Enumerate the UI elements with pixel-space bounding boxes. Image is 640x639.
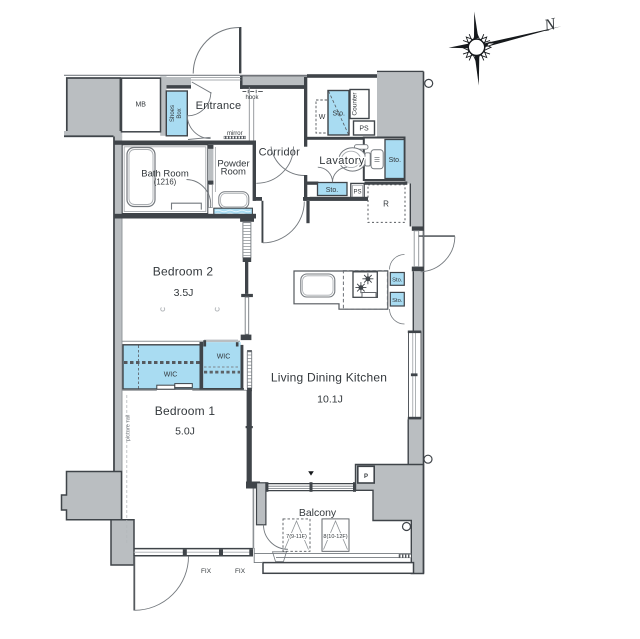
- svg-text:Counter: Counter: [352, 92, 359, 116]
- svg-text:3.5J: 3.5J: [174, 287, 194, 299]
- svg-text:FIX: FIX: [201, 568, 212, 575]
- svg-text:Balcony: Balcony: [299, 507, 337, 519]
- svg-text:Entrance: Entrance: [196, 100, 242, 112]
- svg-text:(1216): (1216): [154, 177, 177, 186]
- svg-text:Sto.: Sto.: [389, 157, 402, 164]
- svg-text:Lavatory: Lavatory: [319, 155, 364, 167]
- svg-text:PS: PS: [353, 190, 361, 196]
- svg-text:Shoes: Shoes: [170, 105, 176, 122]
- svg-text:Sto.: Sto.: [392, 298, 403, 304]
- svg-text:hook: hook: [245, 95, 259, 101]
- svg-text:MB: MB: [135, 102, 146, 109]
- svg-text:W: W: [319, 114, 326, 121]
- svg-text:Sto.: Sto.: [326, 187, 339, 194]
- svg-text:WIC: WIC: [217, 354, 231, 361]
- svg-text:Sto.: Sto.: [332, 111, 345, 118]
- svg-text:7(9-11F): 7(9-11F): [286, 534, 307, 540]
- svg-text:8(10-12F): 8(10-12F): [323, 534, 347, 540]
- svg-text:PS: PS: [359, 126, 369, 133]
- svg-text:Sto.: Sto.: [392, 278, 403, 284]
- svg-text:WIC: WIC: [164, 372, 178, 379]
- svg-text:P: P: [364, 474, 368, 480]
- svg-text:Bedroom 1: Bedroom 1: [155, 404, 216, 418]
- svg-text:10.1J: 10.1J: [317, 393, 343, 405]
- svg-text:FIX: FIX: [235, 568, 246, 575]
- svg-text:picture rail: picture rail: [126, 415, 132, 442]
- svg-text:Living Dining Kitchen: Living Dining Kitchen: [271, 371, 387, 385]
- svg-text:Bedroom 2: Bedroom 2: [153, 264, 214, 278]
- svg-text:Box: Box: [177, 108, 183, 118]
- svg-text:Room: Room: [221, 167, 246, 178]
- svg-text:5.0J: 5.0J: [175, 426, 195, 438]
- svg-text:R: R: [383, 200, 389, 209]
